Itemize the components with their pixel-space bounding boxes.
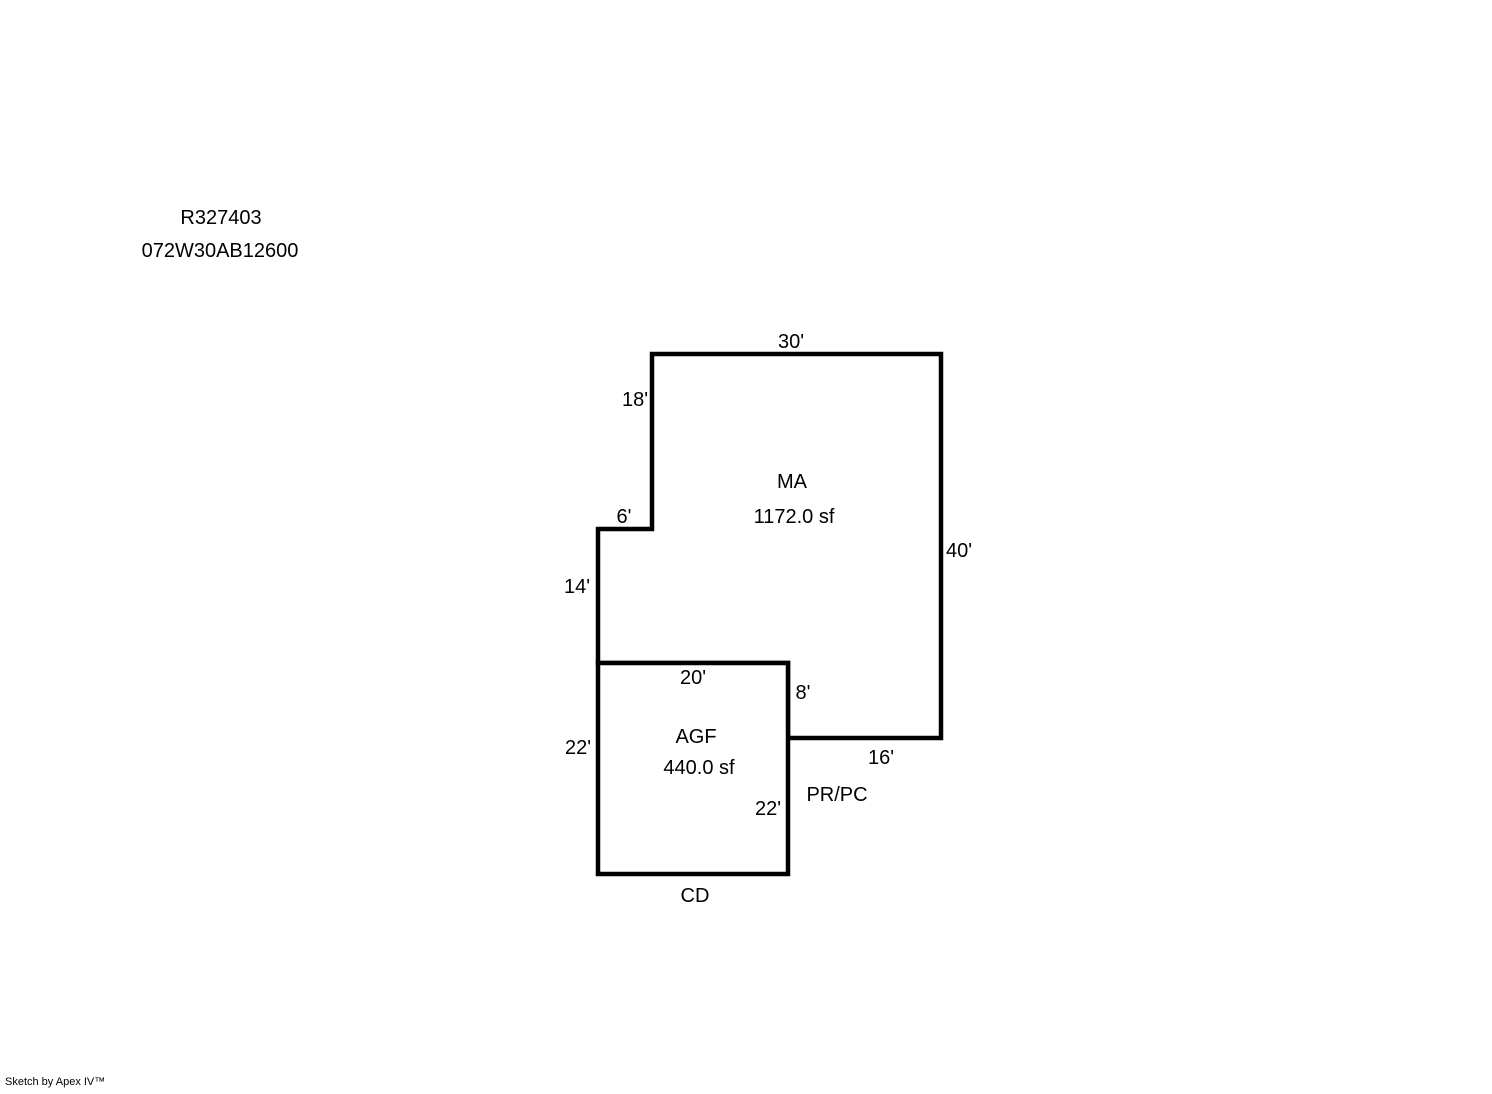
floorplan-drawing — [0, 0, 1492, 1094]
sketch-page: R327403 072W30AB12600 30' 18' 6' 14' 40'… — [0, 0, 1492, 1094]
dimension-agf-top: 20' — [680, 668, 706, 688]
dimension-agf-left: 22' — [565, 738, 591, 758]
dimension-ma-left-upper: 18' — [622, 390, 648, 410]
agf-area-size: 440.0 sf — [663, 758, 734, 778]
sketch-credit-text: Sketch by Apex IV™ — [5, 1077, 105, 1088]
dimension-ma-right: 40' — [946, 541, 972, 561]
ma-area-name: MA — [777, 472, 807, 492]
dimension-ma-bottom: 16' — [868, 748, 894, 768]
dimension-ma-top: 30' — [778, 332, 804, 352]
ma-area-size: 1172.0 sf — [754, 507, 835, 527]
dimension-ma-left-lower: 14' — [564, 577, 590, 597]
dimension-ma-inner-vertical: 8' — [796, 683, 811, 703]
dimension-ma-step: 6' — [617, 507, 632, 527]
annotation-pr-pc: PR/PC — [806, 785, 867, 805]
agf-area-name: AGF — [675, 727, 716, 747]
annotation-cd: CD — [681, 886, 710, 906]
dimension-agf-right: 22' — [755, 799, 781, 819]
